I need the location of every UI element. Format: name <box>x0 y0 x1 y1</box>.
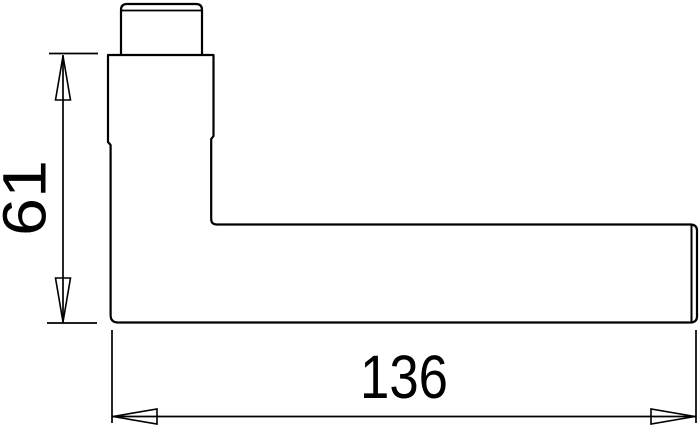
handle-geometry <box>108 4 697 323</box>
spindle-cap-outline <box>121 4 202 55</box>
dimension-label-height: 61 <box>0 160 59 236</box>
dimension-label-length: 136 <box>360 343 448 411</box>
handle-outline <box>108 55 697 323</box>
drawing-svg: 61 136 <box>0 0 700 432</box>
technical-drawing-canvas: 61 136 <box>0 0 700 432</box>
